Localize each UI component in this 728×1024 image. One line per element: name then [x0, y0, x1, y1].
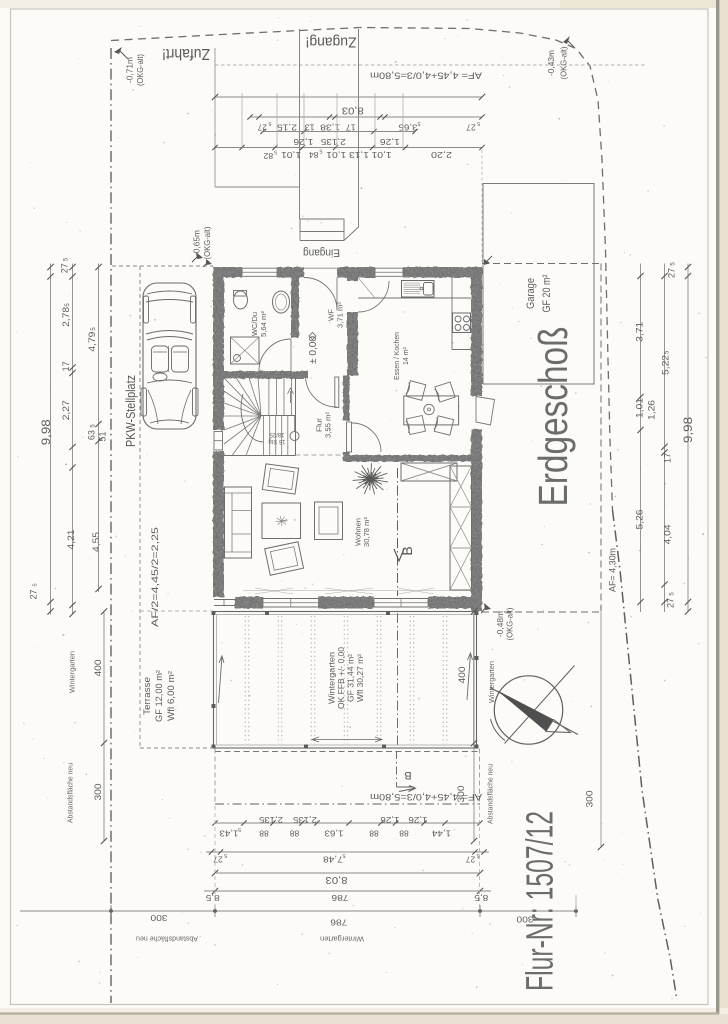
- svg-text:8,03: 8,03: [341, 105, 363, 116]
- svg-text:9,98: 9,98: [41, 419, 53, 445]
- svg-text:400: 400: [457, 667, 467, 684]
- svg-text:Zufahrt!: Zufahrt!: [162, 45, 210, 62]
- svg-text:2,135: 2,135: [259, 815, 283, 825]
- svg-text:Abstandsfläche neu: Abstandsfläche neu: [136, 935, 198, 944]
- svg-text:5: 5: [319, 148, 322, 154]
- svg-text:3,55 m²: 3,55 m²: [324, 411, 333, 438]
- svg-text:300: 300: [93, 784, 103, 801]
- svg-text:3,71 m²: 3,71 m²: [336, 301, 345, 328]
- svg-text:786: 786: [331, 893, 348, 903]
- svg-text:17: 17: [663, 453, 673, 463]
- svg-text:-0,65m: -0,65m: [192, 230, 202, 256]
- svg-text:AF/2=4,45/2=2,25: AF/2=4,45/2=2,25: [150, 527, 160, 627]
- svg-text:Wintergarten: Wintergarten: [489, 661, 496, 703]
- svg-text:Abstandsfläche neu: Abstandsfläche neu: [488, 764, 495, 824]
- svg-text:Wfl 6,00 m²: Wfl 6,00 m²: [166, 671, 176, 721]
- svg-text:Terrasse: Terrasse: [142, 677, 152, 715]
- svg-text:88: 88: [259, 829, 269, 839]
- svg-text:82: 82: [263, 151, 273, 161]
- svg-text:(OKG-alt): (OKG-alt): [135, 54, 145, 86]
- svg-text:3,71: 3,71: [635, 322, 645, 342]
- svg-text:1,13: 1,13: [349, 150, 369, 160]
- svg-text:2,20: 2,20: [431, 150, 452, 160]
- svg-text:400: 400: [93, 660, 103, 677]
- svg-text:1,43: 1,43: [219, 829, 238, 839]
- svg-text:5: 5: [238, 826, 241, 832]
- svg-text:63: 63: [86, 430, 96, 440]
- svg-text:27: 27: [29, 589, 39, 599]
- svg-text:Garage: Garage: [525, 278, 537, 309]
- svg-text:2,15: 2,15: [277, 123, 297, 133]
- svg-text:51: 51: [97, 432, 107, 442]
- svg-text:27: 27: [257, 123, 267, 133]
- svg-text:8,5: 8,5: [474, 893, 488, 903]
- svg-text:(OKG-alt): (OKG-alt): [559, 46, 569, 79]
- svg-text:1,44: 1,44: [432, 829, 451, 839]
- svg-text:8,5: 8,5: [205, 893, 219, 903]
- svg-text:88: 88: [290, 829, 300, 839]
- svg-text:GF 20 m²: GF 20 m²: [541, 274, 553, 312]
- svg-text:5: 5: [33, 583, 39, 586]
- svg-text:16 Stg: 16 Stg: [269, 438, 286, 444]
- svg-text:4,79: 4,79: [87, 332, 97, 352]
- svg-text:Zugang!: Zugang!: [306, 34, 357, 51]
- svg-text:1,26: 1,26: [380, 137, 400, 147]
- svg-text:9,98: 9,98: [683, 417, 695, 443]
- svg-text:5: 5: [224, 852, 227, 858]
- svg-text:Eingang: Eingang: [303, 247, 340, 259]
- svg-text:88: 88: [399, 829, 409, 839]
- svg-text:(OKG-alt): (OKG-alt): [202, 226, 212, 259]
- svg-text:27: 27: [666, 598, 676, 608]
- svg-text:PKW-Stellplatz: PKW-Stellplatz: [123, 375, 138, 447]
- svg-text:Flur: Flur: [315, 417, 324, 432]
- svg-text:Erdgeschoß: Erdgeschoß: [530, 327, 576, 507]
- svg-text:1,26: 1,26: [647, 400, 657, 420]
- svg-text:4,04: 4,04: [663, 524, 673, 544]
- svg-text:5: 5: [477, 120, 480, 126]
- svg-text:Flur-Nr: 1507/12: Flur-Nr: 1507/12: [520, 811, 562, 991]
- svg-text:1,63: 1,63: [324, 829, 343, 839]
- svg-text:27: 27: [466, 855, 476, 865]
- svg-text:Wintergarten: Wintergarten: [320, 935, 364, 944]
- svg-text:27: 27: [466, 123, 476, 133]
- svg-text:Abstandsfläche neu: Abstandsfläche neu: [68, 763, 75, 823]
- svg-text:4,21: 4,21: [66, 530, 76, 550]
- svg-text:-0,43m: -0,43m: [546, 50, 556, 76]
- svg-text:2,78: 2,78: [61, 307, 71, 327]
- svg-text:84: 84: [309, 150, 319, 160]
- svg-text:Wintergarten: Wintergarten: [70, 651, 77, 693]
- svg-text:17: 17: [345, 123, 355, 133]
- svg-text:27: 27: [667, 268, 677, 278]
- svg-text:Wfl 30,27 m²: Wfl 30,27 m²: [356, 654, 365, 702]
- svg-text:AF= 4,45+4,0/3=5,80m: AF= 4,45+4,0/3=5,80m: [370, 791, 482, 802]
- svg-text:AF= 4,30m: AF= 4,30m: [608, 548, 618, 592]
- svg-text:2,135: 2,135: [293, 815, 317, 825]
- svg-text:1,01: 1,01: [326, 150, 346, 160]
- svg-text:300: 300: [150, 913, 167, 923]
- svg-text:2,135: 2,135: [320, 137, 345, 147]
- svg-text:GF 12,00 m²: GF 12,00 m²: [154, 670, 164, 722]
- svg-text:Wintergarten: Wintergarten: [328, 652, 337, 704]
- svg-text:4,55: 4,55: [91, 532, 101, 552]
- svg-text:5: 5: [274, 149, 277, 155]
- svg-text:GF 31,44 m²: GF 31,44 m²: [347, 654, 356, 702]
- svg-text:18/25: 18/25: [269, 431, 285, 437]
- svg-text:B: B: [404, 769, 411, 781]
- svg-text:OK FFB +/- 0,00: OK FFB +/- 0,00: [337, 646, 346, 709]
- svg-text:WC/Du: WC/Du: [250, 312, 259, 336]
- svg-text:WF: WF: [327, 309, 336, 321]
- svg-text:3,65: 3,65: [398, 123, 417, 133]
- svg-text:1,26: 1,26: [293, 137, 313, 147]
- svg-text:8,03: 8,03: [325, 874, 347, 885]
- svg-text:27: 27: [213, 855, 223, 865]
- svg-text:AF= 4,45+4,0/3=5,80m: AF= 4,45+4,0/3=5,80m: [370, 70, 482, 81]
- svg-text:-0,71m: -0,71m: [125, 57, 135, 83]
- svg-text:5,22: 5,22: [661, 355, 671, 375]
- svg-text:(OKG-alt): (OKG-alt): [505, 607, 515, 640]
- svg-text:± 0,00: ± 0,00: [308, 336, 319, 364]
- svg-text:14 m²: 14 m²: [401, 347, 410, 365]
- svg-text:5: 5: [417, 120, 420, 126]
- svg-text:5,26: 5,26: [635, 510, 645, 530]
- svg-text:7,48: 7,48: [323, 855, 343, 865]
- svg-text:1,26: 1,26: [380, 815, 399, 825]
- svg-text:5: 5: [268, 120, 271, 126]
- svg-text:5: 5: [342, 852, 345, 858]
- svg-text:88: 88: [369, 829, 379, 839]
- svg-text:1,01: 1,01: [371, 150, 391, 160]
- svg-text:27: 27: [60, 263, 70, 273]
- svg-text:300: 300: [585, 791, 595, 808]
- svg-text:5,64 m²: 5,64 m²: [259, 310, 268, 337]
- svg-text:1,26: 1,26: [408, 815, 427, 825]
- svg-text:2,27: 2,27: [61, 400, 71, 420]
- svg-text:1,01: 1,01: [281, 150, 301, 160]
- svg-text:786: 786: [330, 918, 347, 928]
- svg-text:30,78 m²: 30,78 m²: [362, 517, 371, 547]
- svg-text:1,01: 1,01: [635, 398, 645, 418]
- svg-text:13: 13: [304, 123, 314, 133]
- svg-text:-0,48m: -0,48m: [495, 611, 505, 637]
- svg-text:17: 17: [61, 361, 71, 371]
- svg-text:Essen / Kochen: Essen / Kochen: [392, 332, 401, 380]
